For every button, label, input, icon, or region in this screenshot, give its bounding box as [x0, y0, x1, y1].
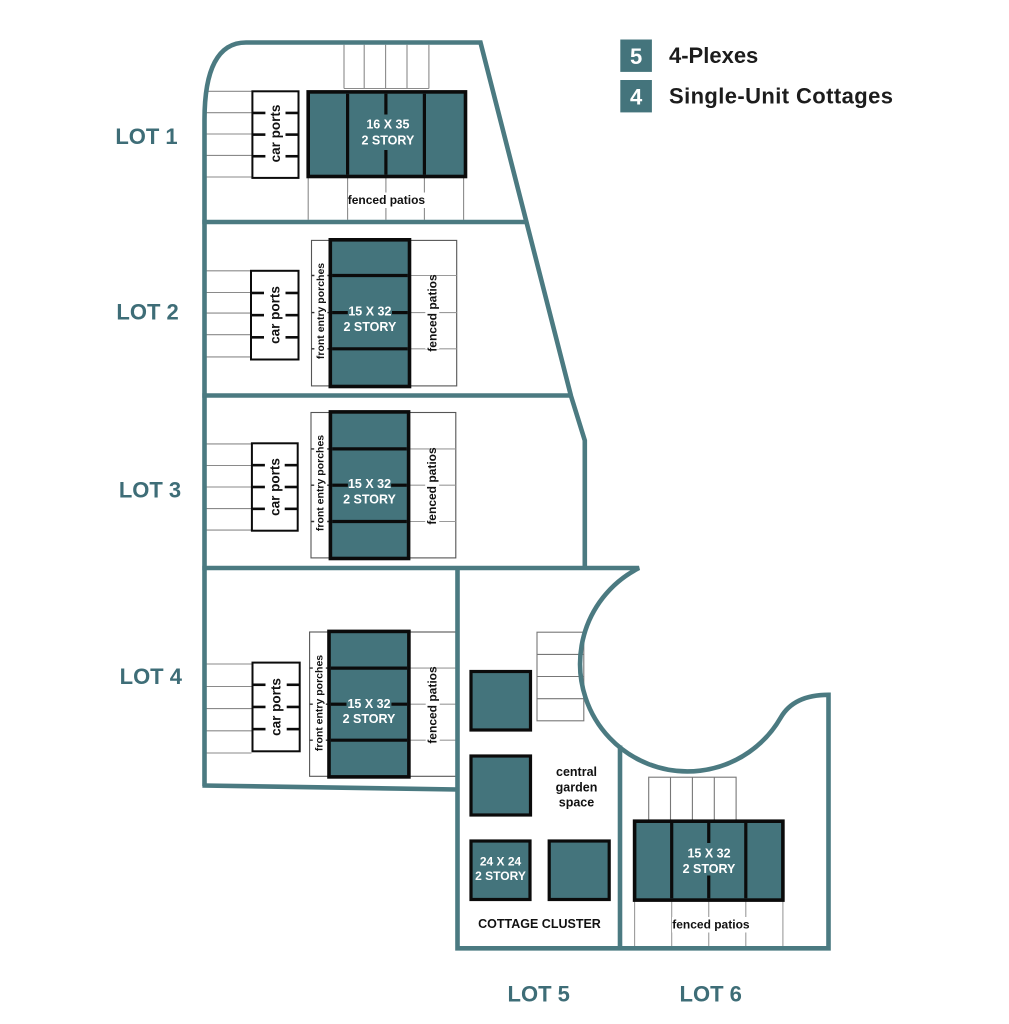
svg-text:5: 5 — [630, 44, 642, 69]
svg-text:LOT 2: LOT 2 — [116, 299, 178, 324]
svg-text:fenced patios: fenced patios — [348, 193, 426, 207]
svg-text:fenced patios: fenced patios — [672, 918, 750, 932]
svg-text:LOT 4: LOT 4 — [120, 664, 183, 689]
svg-text:4: 4 — [630, 85, 643, 110]
svg-text:car ports: car ports — [267, 286, 282, 344]
svg-text:front entry porches: front entry porches — [313, 655, 325, 751]
svg-text:2 STORY: 2 STORY — [343, 493, 396, 507]
svg-text:15 X 32: 15 X 32 — [348, 305, 391, 319]
svg-text:space: space — [559, 795, 594, 809]
svg-text:2 STORY: 2 STORY — [343, 712, 396, 726]
svg-text:16 X 35: 16 X 35 — [366, 117, 409, 131]
svg-text:fenced patios: fenced patios — [425, 447, 439, 525]
svg-text:2 STORY: 2 STORY — [344, 320, 397, 334]
svg-text:car ports: car ports — [267, 458, 282, 516]
svg-text:fenced patios: fenced patios — [426, 666, 440, 744]
svg-text:15 X 32: 15 X 32 — [347, 697, 390, 711]
svg-text:15 X 32: 15 X 32 — [687, 846, 730, 860]
svg-text:Single-Unit Cottages: Single-Unit Cottages — [669, 84, 893, 109]
svg-text:2 STORY: 2 STORY — [475, 869, 526, 883]
svg-text:LOT 3: LOT 3 — [119, 478, 181, 503]
svg-text:4-Plexes: 4-Plexes — [669, 43, 758, 68]
svg-text:2 STORY: 2 STORY — [362, 133, 415, 147]
svg-text:LOT 5: LOT 5 — [508, 982, 570, 1007]
svg-text:LOT 1: LOT 1 — [115, 124, 177, 149]
svg-text:car ports: car ports — [268, 105, 283, 163]
svg-text:24 X 24: 24 X 24 — [480, 855, 522, 869]
svg-text:fenced patios: fenced patios — [425, 274, 439, 352]
svg-text:15 X 32: 15 X 32 — [348, 477, 391, 491]
svg-text:2 STORY: 2 STORY — [683, 862, 736, 876]
svg-text:LOT 6: LOT 6 — [680, 982, 742, 1007]
svg-text:car ports: car ports — [269, 678, 284, 736]
svg-text:COTTAGE CLUSTER: COTTAGE CLUSTER — [478, 917, 601, 931]
svg-text:front entry porches: front entry porches — [315, 435, 327, 531]
svg-text:central: central — [556, 765, 597, 779]
svg-text:front entry porches: front entry porches — [315, 263, 327, 359]
svg-text:garden: garden — [556, 780, 598, 794]
